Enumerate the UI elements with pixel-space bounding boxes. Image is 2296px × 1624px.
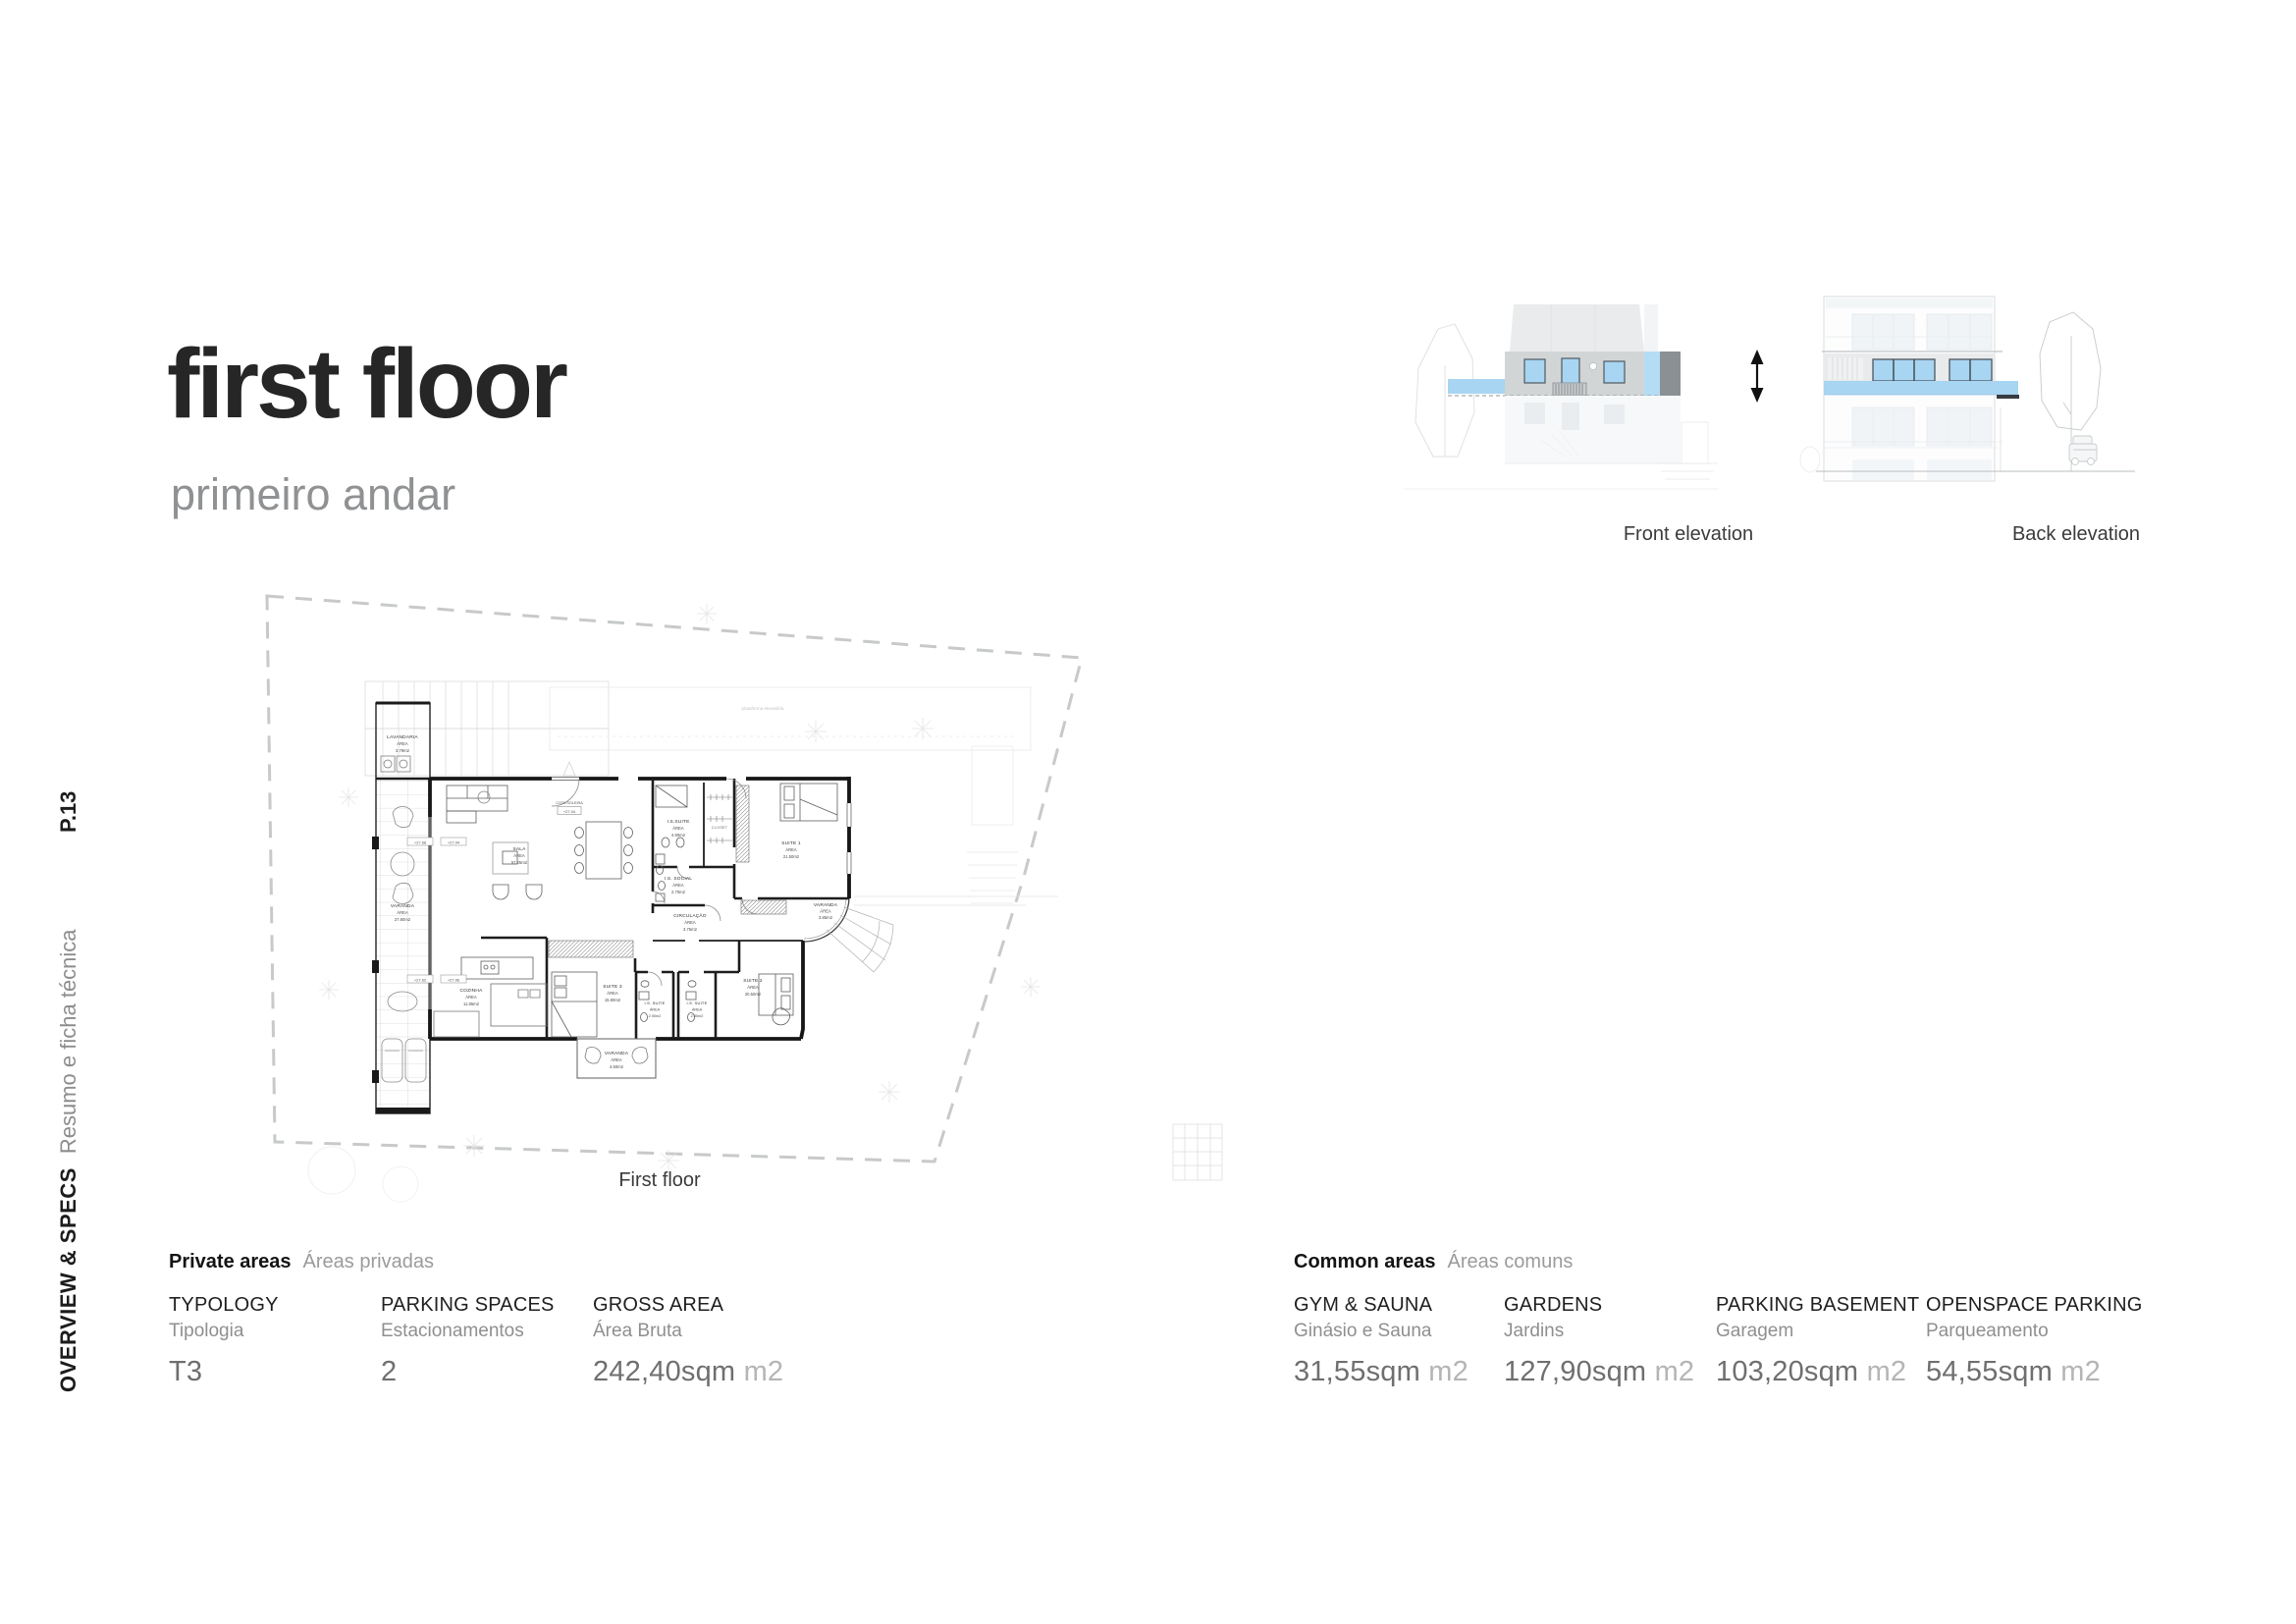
spec-typology: TYPOLOGY Tipologia T3 xyxy=(169,1294,279,1388)
svg-text:ÁREA: ÁREA xyxy=(611,1057,622,1062)
svg-text:ÁREA: ÁREA xyxy=(692,1008,703,1012)
room-label: COZINHAÁREA11.85m2 xyxy=(460,988,484,1006)
room-label: I.S.SUITEÁREA4.90m2 xyxy=(667,819,689,838)
svg-text:27.80m2: 27.80m2 xyxy=(395,917,411,922)
brochure-page: OVERVIEW & SPECSResumo e ficha técnica P… xyxy=(0,0,2296,1624)
svg-text:3.75m2: 3.75m2 xyxy=(683,927,698,932)
spec-parking-spaces: PARKING SPACES Estacionamentos 2 xyxy=(381,1294,555,1388)
sidebar-section-en: OVERVIEW & SPECS xyxy=(56,1167,80,1392)
svg-text:ÁREA: ÁREA xyxy=(747,985,759,990)
svg-text:ÁREA: ÁREA xyxy=(672,826,684,831)
common-areas-section: Common areasÁreas comuns GYM & SAUNA Gin… xyxy=(1294,1251,2177,1294)
svg-text:+27.06: +27.06 xyxy=(448,977,460,982)
entry-level: +27.04 xyxy=(563,809,576,814)
spec-label-en: PARKING SPACES xyxy=(381,1294,555,1317)
spec-label-pt: Garagem xyxy=(1716,1321,1919,1342)
plan-caption: First floor xyxy=(571,1169,748,1192)
svg-text:57.25m2: 57.25m2 xyxy=(511,860,528,865)
svg-text:4.50m2: 4.50m2 xyxy=(610,1064,624,1069)
spec-value: 103,20sqm m2 xyxy=(1716,1356,1919,1388)
svg-text:VARANDA: VARANDA xyxy=(605,1051,629,1056)
floor-plan-drawing: plataforma elevatória xyxy=(245,579,1266,1208)
spec-value: 242,40sqm m2 xyxy=(593,1356,783,1388)
svg-text:ÁREA: ÁREA xyxy=(397,910,408,915)
spec-label-pt: Tipologia xyxy=(169,1321,279,1342)
svg-text:ÁREA: ÁREA xyxy=(672,883,684,888)
sidebar-section-title: OVERVIEW & SPECSResumo e ficha técnica xyxy=(56,892,81,1392)
svg-text:ÁREA: ÁREA xyxy=(785,847,797,852)
spec-label-en: PARKING BASEMENT xyxy=(1716,1294,1919,1317)
room-label: SUITE 3ÁREA15.80m2 xyxy=(603,984,622,1002)
svg-text:3.85m2: 3.85m2 xyxy=(819,915,833,920)
svg-text:ÁREA: ÁREA xyxy=(397,741,408,746)
svg-text:+27.62: +27.62 xyxy=(414,977,427,982)
page-subtitle: primeiro andar xyxy=(171,468,455,521)
room-label: SUITE 1ÁREA21.50m2 xyxy=(781,840,801,859)
spec-label-en: GYM & SAUNA xyxy=(1294,1294,1468,1317)
svg-text:SUITE 3: SUITE 3 xyxy=(603,984,622,990)
room-label: SALAÁREA57.25m2 xyxy=(511,846,528,865)
svg-text:15.80m2: 15.80m2 xyxy=(605,998,621,1002)
svg-text:ÁREA: ÁREA xyxy=(465,995,477,1000)
spec-label-en: OPENSPACE PARKING xyxy=(1926,1294,2143,1317)
room-label: VARANDAÁREA3.85m2 xyxy=(814,902,838,920)
spec-label-pt: Jardins xyxy=(1504,1321,1694,1342)
spec-gardens: GARDENS Jardins 127,90sqm m2 xyxy=(1504,1294,1694,1388)
svg-text:ÁREA: ÁREA xyxy=(607,991,618,996)
spec-value: T3 xyxy=(169,1356,279,1388)
svg-text:+27.68: +27.68 xyxy=(414,839,427,844)
back-elevation-caption: Back elevation xyxy=(1988,523,2164,546)
spec-value: 2 xyxy=(381,1356,555,1388)
svg-text:I.S. SUITE: I.S. SUITE xyxy=(687,1001,708,1005)
svg-text:2.90m2: 2.90m2 xyxy=(649,1014,662,1018)
private-areas-heading: Private areasÁreas privadas xyxy=(169,1251,1052,1294)
svg-text:ÁREA: ÁREA xyxy=(684,920,696,925)
plan-closet-rails xyxy=(707,794,732,843)
spec-label-pt: Estacionamentos xyxy=(381,1321,555,1342)
spec-label-pt: Ginásio e Sauna xyxy=(1294,1321,1468,1342)
front-elevation-caption: Front elevation xyxy=(1600,523,1777,546)
svg-text:4.90m2: 4.90m2 xyxy=(671,833,686,838)
spec-label-pt: Área Bruta xyxy=(593,1321,783,1342)
svg-text:CIRCULAÇÃO: CIRCULAÇÃO xyxy=(673,912,707,919)
back-elevation xyxy=(1800,297,2135,481)
common-areas-heading: Common areasÁreas comuns xyxy=(1294,1251,2177,1294)
svg-text:ÁREA: ÁREA xyxy=(650,1008,661,1012)
room-label: I.S. SUITEÁREA2.80m2 xyxy=(687,1001,708,1018)
svg-text:LAVANDARIA: LAVANDARIA xyxy=(387,734,418,740)
svg-text:21.50m2: 21.50m2 xyxy=(783,854,800,859)
spec-label-en: TYPOLOGY xyxy=(169,1294,279,1317)
common-areas-heading-pt: Áreas comuns xyxy=(1448,1251,1574,1272)
page-number: P.13 xyxy=(56,774,81,833)
svg-text:SUITE 2: SUITE 2 xyxy=(743,978,763,984)
spec-parking-basement: PARKING BASEMENT Garagem 103,20sqm m2 xyxy=(1716,1294,1919,1388)
svg-text:2.70m2: 2.70m2 xyxy=(671,890,686,894)
elevation-compare-arrow xyxy=(1751,350,1764,403)
svg-text:I.S. SOCIAL: I.S. SOCIAL xyxy=(665,876,692,882)
spec-value: 54,55sqm m2 xyxy=(1926,1356,2143,1388)
room-label: I.S. SUITEÁREA2.90m2 xyxy=(645,1001,666,1018)
elevations-drawing xyxy=(1394,275,2160,501)
svg-text:SALA: SALA xyxy=(512,846,526,852)
front-railing xyxy=(1553,383,1586,396)
plan-site-note: plataforma elevatória xyxy=(742,706,784,711)
svg-text:SUITE 1: SUITE 1 xyxy=(781,840,801,846)
svg-text:COZINHA: COZINHA xyxy=(460,988,484,994)
plan-curved-balcony xyxy=(804,898,893,972)
svg-text:3.79m2: 3.79m2 xyxy=(396,748,410,753)
plan-wardrobes xyxy=(549,785,786,957)
room-label: CLOSET xyxy=(712,826,728,830)
entry-note: COTA SOLEIRA xyxy=(556,801,583,805)
svg-text:20.50m2: 20.50m2 xyxy=(745,992,762,997)
svg-text:2.80m2: 2.80m2 xyxy=(691,1014,704,1018)
room-label: LAVANDARIAÁREA3.79m2 xyxy=(387,734,418,753)
spec-value: 31,55sqm m2 xyxy=(1294,1356,1468,1388)
spec-gym-sauna: GYM & SAUNA Ginásio e Sauna 31,55sqm m2 xyxy=(1294,1294,1468,1388)
spec-openspace-parking: OPENSPACE PARKING Parqueamento 54,55sqm … xyxy=(1926,1294,2143,1388)
spec-gross-area: GROSS AREA Área Bruta 242,40sqm m2 xyxy=(593,1294,783,1388)
page-title: first floor xyxy=(167,335,565,433)
svg-text:I.S. SUITE: I.S. SUITE xyxy=(645,1001,666,1005)
private-areas-section: Private areasÁreas privadas TYPOLOGY Tip… xyxy=(169,1251,1052,1294)
svg-text:I.S.SUITE: I.S.SUITE xyxy=(667,819,689,825)
svg-text:VARANDA: VARANDA xyxy=(391,903,415,909)
room-label: CIRCULAÇÃOÁREA3.75m2 xyxy=(673,912,707,932)
sidebar-section-pt: Resumo e ficha técnica xyxy=(56,929,80,1154)
svg-text:VARANDA: VARANDA xyxy=(814,902,838,908)
room-label: VARANDAÁREA4.50m2 xyxy=(605,1051,629,1069)
private-areas-heading-en: Private areas xyxy=(169,1251,292,1272)
room-label: I.S. SOCIALÁREA2.70m2 xyxy=(665,876,692,894)
plan-glass-walls xyxy=(429,778,851,1010)
spec-label-en: GROSS AREA xyxy=(593,1294,783,1317)
spec-value: 127,90sqm m2 xyxy=(1504,1356,1694,1388)
svg-text:ÁREA: ÁREA xyxy=(513,853,525,858)
room-label: SUITE 2ÁREA20.50m2 xyxy=(743,978,763,997)
common-areas-heading-en: Common areas xyxy=(1294,1251,1436,1272)
spec-label-pt: Parqueamento xyxy=(1926,1321,2143,1342)
svg-text:CLOSET: CLOSET xyxy=(712,826,728,830)
svg-text:+27.04: +27.04 xyxy=(448,839,460,844)
back-car xyxy=(2069,436,2097,465)
private-areas-heading-pt: Áreas privadas xyxy=(303,1251,434,1272)
spec-label-en: GARDENS xyxy=(1504,1294,1694,1317)
front-elevation xyxy=(1404,304,1718,489)
plan-doors xyxy=(552,779,1266,986)
svg-text:11.85m2: 11.85m2 xyxy=(463,1001,480,1006)
svg-text:ÁREA: ÁREA xyxy=(820,909,831,914)
